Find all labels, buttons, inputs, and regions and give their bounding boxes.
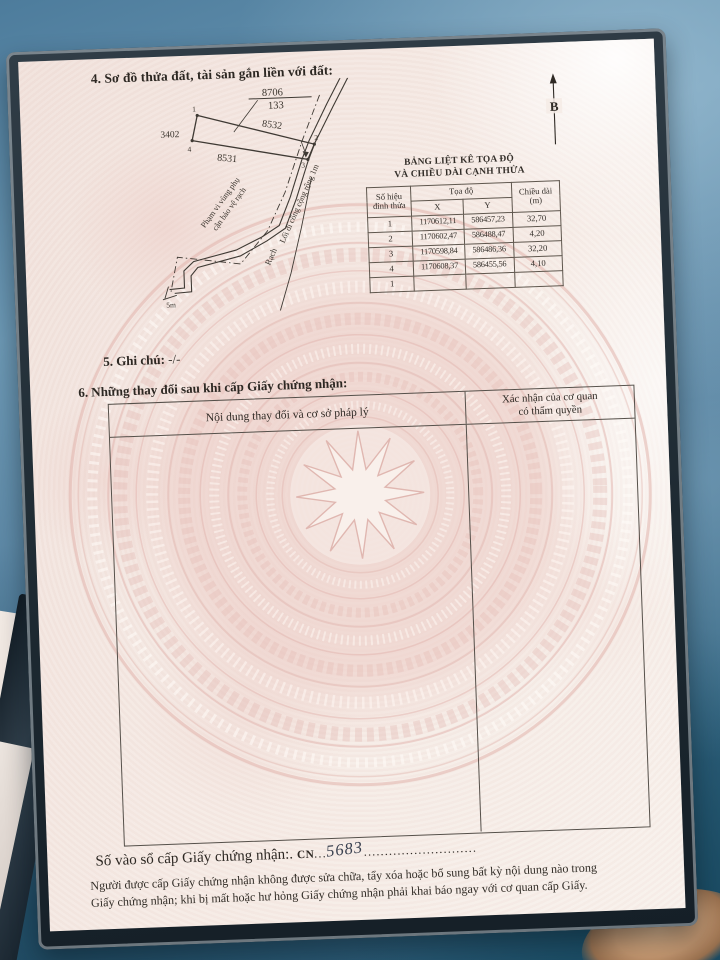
canal-line — [276, 177, 317, 310]
vertex-4-label: 4 — [187, 145, 191, 154]
certificate-page: 4. Sơ đồ thửa đất, tài sản gắn liền với … — [18, 39, 685, 932]
col-header-vertex: Số hiệuđỉnh thửa — [366, 186, 411, 218]
changes-col2-header: Xác nhận của cơ quan có thẩm quyền — [466, 386, 635, 424]
path-edge-south — [162, 76, 353, 290]
plastic-sleeve: 4. Sơ đồ thửa đất, tài sản gắn liền với … — [6, 28, 698, 950]
parcel-below-label: 8531 — [217, 153, 238, 166]
col-header-length: Chiều dài(m) — [511, 180, 560, 212]
coordinate-table-block: BẢNG LIỆT KÊ TỌA ĐỘ VÀ CHIỀU DÀI CẠNH TH… — [359, 152, 564, 293]
north-arrowhead — [549, 73, 556, 83]
parcel-outline — [191, 111, 315, 163]
vertex-2-label: 2 — [314, 133, 318, 142]
section5-value: -/- — [168, 351, 181, 366]
north-arrow: B — [541, 72, 568, 151]
serial-prefix: CN — [297, 849, 315, 862]
buffer-label: Phạm vi vùng phụcận bảo vệ rạch — [199, 176, 250, 236]
fraction-denominator: 133 — [268, 100, 284, 112]
parcel-above-label: 8532 — [261, 118, 282, 132]
changes-table-body — [110, 419, 650, 845]
handwritten-serial-number: 5683 — [325, 837, 364, 861]
vertex-3-label: 3 — [301, 160, 305, 169]
photo-of-certificate: 4. Sơ đồ thửa đất, tài sản gắn liền với … — [0, 0, 720, 960]
path-label: Lối đi công cộng rộng 1m — [278, 162, 321, 244]
changes-col1-cell — [110, 425, 482, 845]
north-letter: B — [550, 99, 560, 114]
coordinate-table: Số hiệuđỉnh thửa Tọa độ Chiều dài(m) X Y… — [366, 180, 564, 293]
vertex-1-label: 1 — [192, 104, 196, 113]
fraction-numerator: 8706 — [262, 87, 283, 99]
width-5m-label: 5m — [166, 300, 176, 309]
changes-table: Nội dung thay đổi và cơ sở pháp lý Xác n… — [108, 385, 651, 847]
parcel-left-label: 3402 — [160, 130, 180, 141]
section5-note: 5. Ghi chú: -/- — [103, 351, 181, 370]
canal-label: Rạch — [263, 246, 280, 267]
section5-label: 5. Ghi chú: — [103, 352, 165, 369]
